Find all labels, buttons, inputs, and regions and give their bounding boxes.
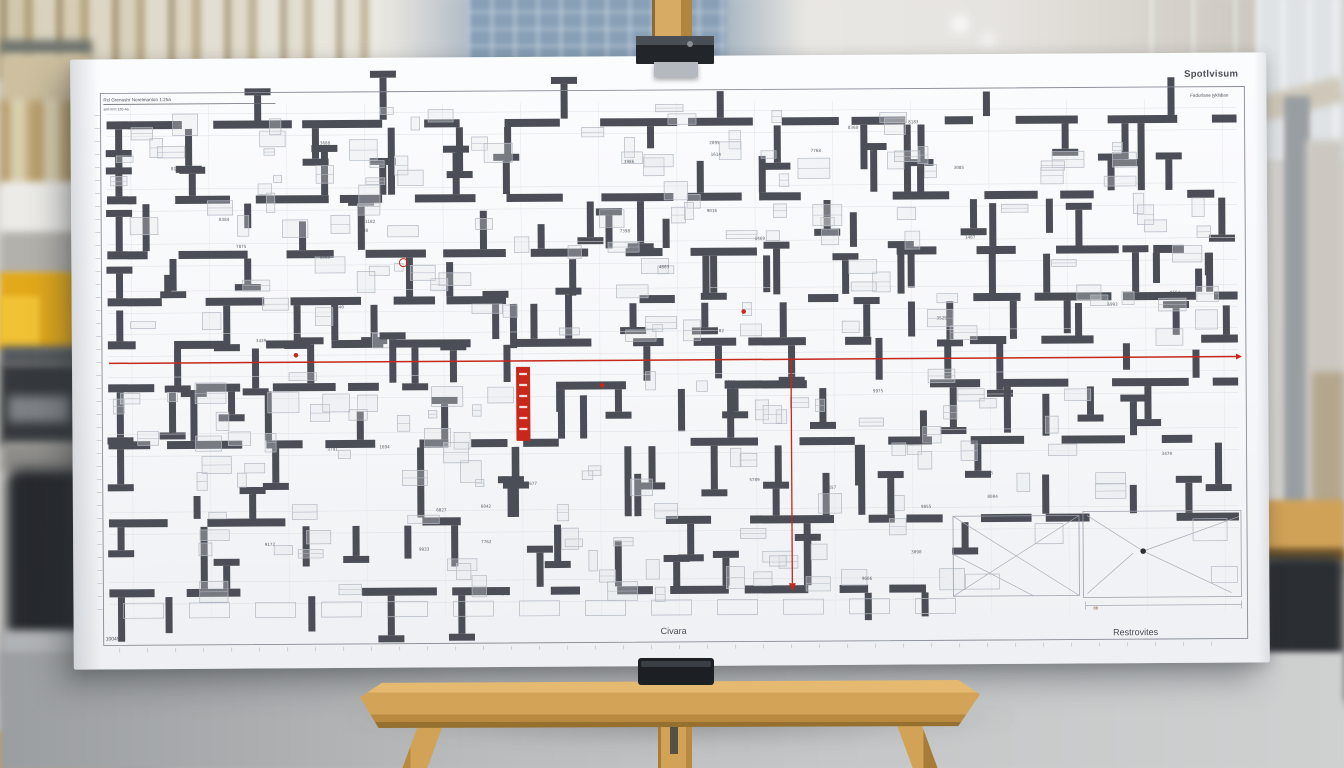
svg-text:4845: 4845 [499,591,510,597]
svg-text:3688: 3688 [320,140,331,146]
svg-text:8868: 8868 [320,254,331,260]
easel-clamp-screw [687,41,693,47]
svg-text:7768: 7768 [811,148,822,154]
bottom-right-label: Restrovites [1113,627,1159,637]
brand-label: Spotlvisum [1184,69,1238,80]
office-photo-scene: 2848398620532095308569937768965448038183… [0,0,1344,768]
svg-text:7398: 7398 [620,228,631,234]
svg-text:1614: 1614 [711,152,722,158]
easel-bottom-clamp-highlight [641,661,711,667]
svg-text:5657: 5657 [826,485,837,491]
floorplan-drawing: 2848398620532095308569937768965448038183… [70,52,1270,669]
svg-text:3090: 3090 [911,549,922,555]
svg-text:6827: 6827 [436,507,447,513]
svg-text:9975: 9975 [873,388,884,394]
svg-text:9172: 9172 [265,542,276,548]
svg-text:4677: 4677 [527,481,538,487]
svg-text:2219: 2219 [725,379,736,385]
bottom-center-label: Civara [661,626,687,636]
svg-text:9933: 9933 [419,547,430,553]
plan-title-sub: sml-nrm 120-4a [103,107,128,111]
svg-text:3986: 3986 [624,159,635,165]
svg-text:1182: 1182 [365,219,376,225]
svg-text:6640: 6640 [334,304,345,310]
svg-text:1487: 1487 [965,235,976,241]
svg-text:2095: 2095 [709,140,720,146]
svg-text:8384: 8384 [219,217,230,223]
svg-text:3439: 3439 [256,338,267,344]
svg-text:9606: 9606 [862,576,873,582]
yellow-accent-panel-bright [0,296,40,350]
svg-text:8004: 8004 [987,494,998,500]
svg-text:9016: 9016 [707,208,718,214]
svg-text:6993: 6993 [1107,302,1118,308]
svg-text:4803: 4803 [659,264,670,270]
svg-text:5182: 5182 [714,328,725,334]
floorplan-board: 2848398620532095308569937768965448038183… [70,52,1270,669]
brand-sub-label: Fadurlane jyklidian [1190,93,1229,98]
svg-text:7762: 7762 [481,539,492,545]
svg-text:5789: 5789 [749,477,760,483]
easel-tray [360,680,980,728]
easel-top-clamp-lip [654,62,698,77]
svg-text:1694: 1694 [379,444,390,450]
svg-text:3085: 3085 [954,165,965,171]
svg-text:1469: 1469 [755,236,766,242]
title-underline [103,103,275,104]
floorplan-generated-linework: 2848398620532095308569937768965448038183… [94,66,1244,653]
svg-text:1845: 1845 [983,470,994,476]
svg-text:88: 88 [1094,605,1099,610]
bottom-left-label: 10049 [106,636,120,642]
ceiling-light [982,34,994,46]
svg-text:4084: 4084 [971,439,982,445]
svg-text:6042: 6042 [481,504,492,510]
easel-top-clamp-face [636,36,714,45]
svg-text:3470: 3470 [1162,451,1173,457]
svg-text:3525: 3525 [937,315,948,321]
svg-text:9055: 9055 [921,504,932,510]
svg-text:2053: 2053 [645,247,656,253]
background-desk-highlight [8,396,70,422]
svg-text:8368: 8368 [848,125,859,131]
svg-text:3791: 3791 [327,447,338,453]
svg-text:7875: 7875 [236,244,247,250]
svg-text:9654: 9654 [1170,290,1181,296]
svg-text:2848: 2848 [358,228,369,234]
plan-title: Rcl Grenashr Norelmanton 1:25a [103,97,171,102]
svg-text:8183: 8183 [908,119,919,125]
ceiling-light [952,16,968,32]
svg-text:8132: 8132 [171,166,182,172]
